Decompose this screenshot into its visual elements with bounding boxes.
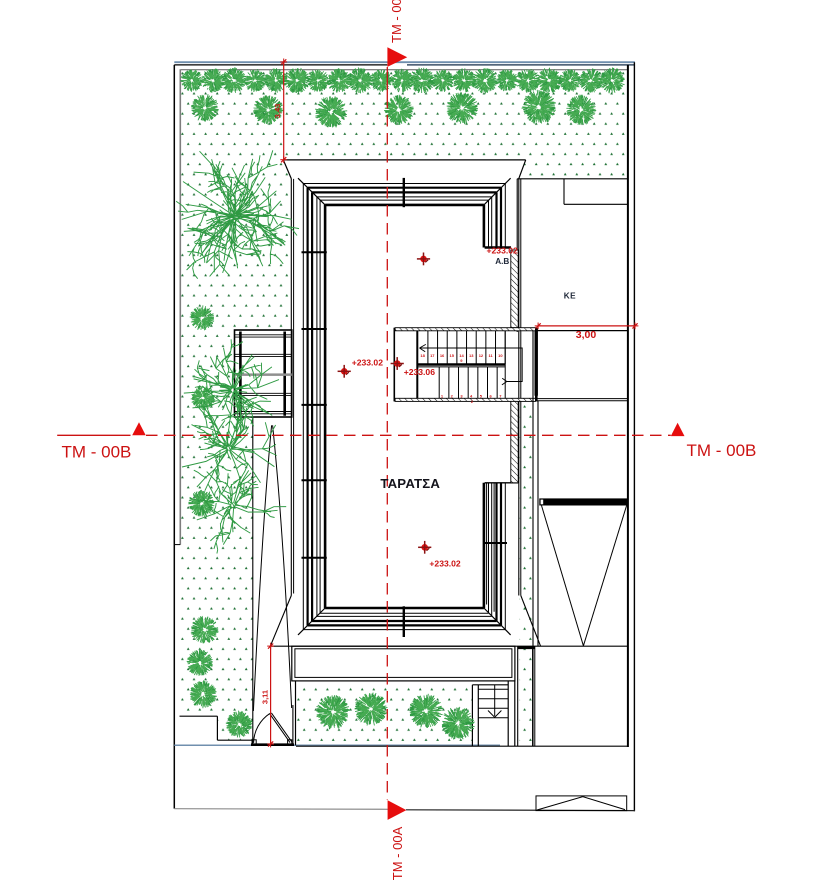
- svg-text:TM - 00A: TM - 00A: [390, 826, 405, 880]
- svg-text:ΤΑΡΑΤΣΑ: ΤΑΡΑΤΣΑ: [380, 476, 440, 491]
- svg-text:KE: KE: [564, 291, 576, 300]
- svg-text:3,00: 3,00: [576, 329, 597, 341]
- svg-text:3,11: 3,11: [261, 690, 270, 704]
- svg-text:+233.02: +233.02: [429, 558, 461, 568]
- svg-text:16: 16: [440, 353, 445, 358]
- svg-text:+233.02: +233.02: [352, 358, 384, 368]
- svg-text:A.B: A.B: [495, 257, 509, 266]
- svg-text:TM - 00B: TM - 00B: [62, 443, 132, 462]
- svg-text:18: 18: [420, 353, 425, 358]
- svg-text:+233.02: +233.02: [487, 245, 519, 255]
- svg-text:TM - 00B: TM - 00B: [687, 441, 757, 460]
- svg-text:17: 17: [430, 353, 435, 358]
- svg-text:10: 10: [498, 353, 503, 358]
- svg-text:TM - 00A: TM - 00A: [389, 0, 404, 43]
- svg-text:12: 12: [479, 353, 484, 358]
- svg-text:13: 13: [469, 353, 474, 358]
- svg-text:3,43: 3,43: [273, 104, 282, 119]
- svg-text:+233.06: +233.06: [404, 367, 436, 377]
- svg-text:15: 15: [450, 353, 455, 358]
